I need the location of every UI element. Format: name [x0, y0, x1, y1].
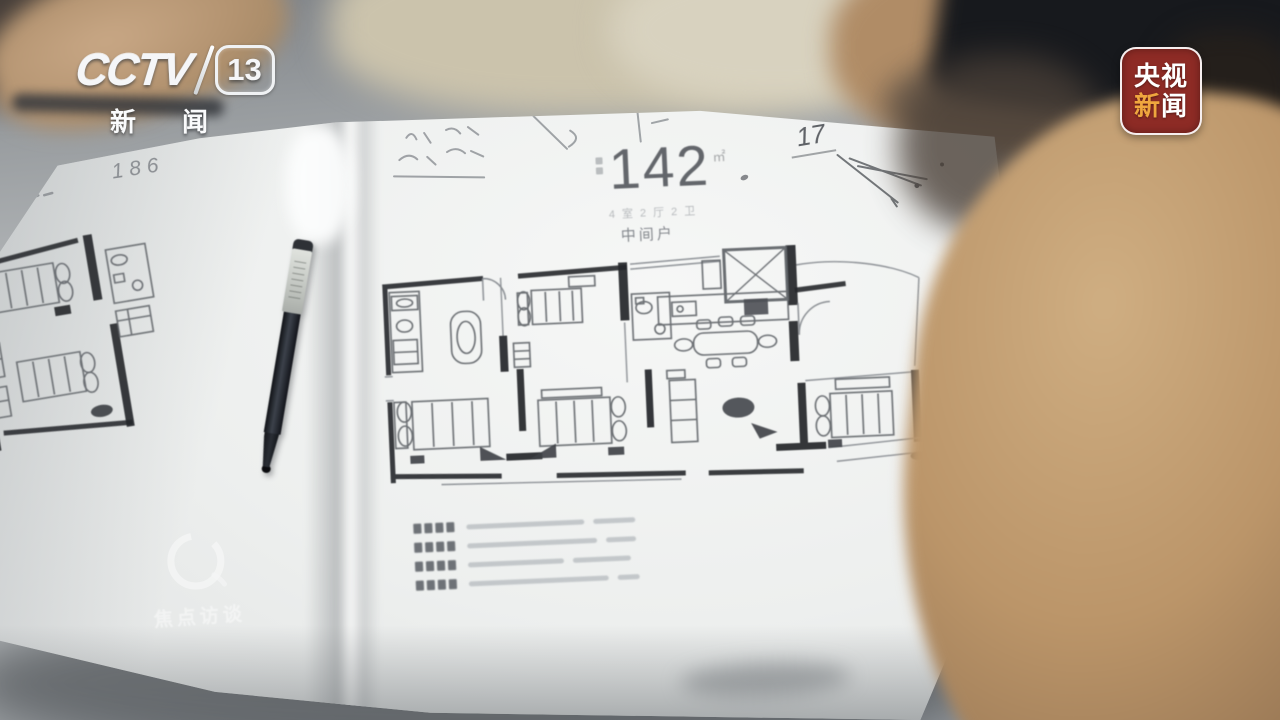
channel-number: 13 — [215, 45, 275, 95]
channel-logo: CCTV 13 新闻 — [76, 44, 275, 139]
handwritten-dot — [740, 174, 749, 182]
floor-plan-main — [371, 229, 941, 493]
layout-spec: 4室2厅2卫 — [609, 202, 703, 222]
badge-line-1: 央视 — [1134, 62, 1188, 91]
news-badge: 央视 新闻 — [1120, 47, 1202, 135]
channel-logo-row: CCTV 13 — [76, 44, 275, 96]
spec-value-bars — [466, 517, 635, 529]
channel-subtitle: 新闻 — [76, 102, 275, 139]
handwritten-note: 186 — [110, 153, 166, 185]
spec-row — [415, 549, 705, 572]
floor-plan-left-page — [0, 219, 190, 464]
floor-area-unit: ㎡ — [712, 146, 726, 166]
logo-slash — [193, 45, 215, 95]
floor-area: 142 ㎡ — [595, 136, 728, 200]
spec-row — [413, 511, 703, 534]
badge-accent-char: 新 — [1134, 91, 1161, 121]
spec-row — [414, 530, 704, 553]
spec-value-bars — [467, 536, 636, 548]
spec-row — [416, 568, 706, 591]
pen-tip — [259, 432, 279, 468]
badge-rest-char: 闻 — [1161, 91, 1188, 121]
channel-brand: CCTV — [73, 44, 193, 96]
spec-label-bars — [413, 522, 454, 534]
spec-value-bars — [468, 555, 631, 567]
floor-area-value: 142 — [608, 137, 712, 199]
tiny-label-marks — [595, 157, 603, 174]
watermark-logo-icon — [158, 524, 233, 599]
badge-line-2: 新闻 — [1134, 92, 1188, 121]
spec-label-bars — [414, 541, 455, 553]
spec-label-bars — [416, 579, 457, 591]
tv-frame: 186 — [0, 0, 1280, 720]
page-curl-highlight — [286, 126, 352, 244]
handwriting-squiggle-left — [0, 143, 72, 245]
program-watermark: 焦点访谈 — [119, 521, 276, 634]
spec-text-block — [413, 511, 706, 600]
spec-value-bars — [469, 574, 640, 586]
spec-label-bars — [415, 560, 456, 572]
